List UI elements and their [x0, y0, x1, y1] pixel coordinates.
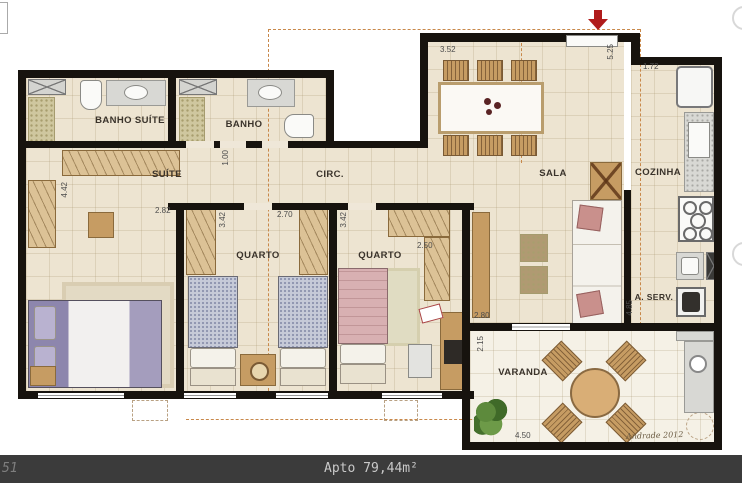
pouf-suite [88, 212, 114, 238]
dining-chair-3 [511, 60, 537, 81]
projection-line-bottom [186, 419, 472, 420]
stove-burner-center [690, 213, 706, 229]
ac-unit-dashed-quarto [384, 400, 418, 421]
room-label-quarto1: QUARTO [228, 251, 288, 262]
wall-sala-left [420, 33, 428, 148]
dim-quarto2-width: 2.50 [417, 241, 433, 250]
door-quarto2 [348, 203, 376, 210]
dim-varanda-width: 4.50 [515, 431, 531, 440]
wall-right [714, 57, 722, 450]
wall-varanda-left [462, 331, 470, 450]
dining-chair-1 [443, 60, 469, 81]
shaft-vent-banho [179, 79, 217, 95]
dining-chair-2 [477, 60, 503, 81]
room-label-cozinha: COZINHA [630, 168, 686, 179]
dim-circ-height: 1.00 [221, 150, 230, 166]
bed-suite-pillow [34, 306, 56, 340]
sofa-pillow-1 [576, 204, 603, 231]
entrance-arrow-head-icon [588, 19, 608, 30]
wall-bathrooms-top [18, 70, 334, 78]
wall-bath-right [326, 70, 334, 148]
dim-quarto1-height: 3.42 [218, 212, 227, 228]
bed-quarto2-pillow [340, 344, 386, 364]
bed2-quarto1-base [280, 368, 326, 386]
door-banho-suite [220, 141, 246, 148]
dim-suite-width: 2.82 [155, 206, 171, 215]
window-quarto2 [382, 393, 442, 398]
window-quarto1-right [276, 393, 328, 398]
dining-plate-1 [484, 98, 491, 105]
pouf-sala-1 [520, 234, 548, 262]
tanque-basin [681, 257, 699, 275]
wall-left [18, 70, 26, 399]
dim-dining-width: 3.52 [440, 45, 456, 54]
stove-burner-3 [683, 227, 697, 241]
basin-banho-suite [124, 85, 148, 100]
bed-quarto2-base [340, 364, 386, 384]
toilet-banho-suite [80, 80, 102, 110]
monitor-quarto2 [444, 340, 462, 364]
room-label-varanda: VARANDA [488, 368, 558, 379]
room-label-aserv: A. SERV. [630, 293, 678, 303]
entrance-arrow-icon [594, 10, 602, 19]
basin-banho [258, 85, 282, 100]
carousel-dot-top[interactable] [732, 6, 742, 30]
churrasqueira-step [676, 331, 714, 341]
closet-quarto1-left [186, 209, 216, 275]
dining-chair-4 [443, 135, 469, 156]
room-label-sala: SALA [528, 169, 578, 180]
bed1-quarto1-base [190, 368, 236, 386]
bed2-quarto1-pillow [280, 348, 326, 368]
wall-sala-varanda [462, 323, 722, 331]
carousel-dot-middle[interactable] [732, 242, 742, 266]
dining-chair-5 [477, 135, 503, 156]
bed2-quarto1-mattress [278, 276, 328, 348]
pouf-sala-2 [520, 266, 548, 294]
wall-bath-divider [168, 70, 176, 148]
dim-kitchen-width: 1.72 [643, 62, 659, 71]
dining-plate-2 [494, 102, 501, 109]
shelf-quarto2 [408, 344, 432, 378]
washer-door [682, 292, 700, 312]
door-quarto1 [244, 203, 272, 210]
future-item-dashed-circle [686, 412, 714, 440]
thumbnail-box[interactable] [0, 2, 8, 34]
churrasqueira-counter [684, 341, 714, 413]
dim-varanda-height: 2.15 [476, 336, 485, 352]
projection-line-right [640, 29, 641, 330]
shaft-vent-banho-suite [28, 79, 66, 95]
wall-varanda-bottom [462, 442, 722, 450]
stove-burner-4 [699, 227, 713, 241]
footer-bar: 51 Apto 79,44m² [0, 455, 742, 483]
fridge-cozinha [676, 66, 713, 108]
sofa-pillow-2 [576, 290, 604, 318]
varanda-table [570, 368, 620, 418]
room-label-banho: BANHO [220, 120, 268, 131]
bed-quarto2-mattress [338, 268, 388, 344]
dining-plate-3 [486, 109, 492, 115]
dining-chair-6 [511, 135, 537, 156]
apartment-area-caption: Apto 79,44m² [0, 461, 742, 476]
dim-suite-height: 4.42 [60, 182, 69, 198]
closet-quarto1-right [299, 209, 328, 275]
ac-unit-dashed-suite [132, 400, 168, 421]
room-label-suite: SUÍTE [142, 170, 192, 181]
door-suite [186, 141, 214, 148]
closet-quarto2-top [388, 209, 450, 237]
projection-line-top [268, 29, 640, 30]
plant-varanda [474, 396, 508, 436]
window-suite [38, 393, 124, 398]
dim-quarto2-height: 3.42 [339, 212, 348, 228]
guitar-stand-suite [30, 366, 56, 386]
shower-banho [179, 97, 205, 145]
dining-table [438, 82, 544, 134]
wall-circ-bottom [168, 203, 474, 210]
bed1-quarto1-mattress [188, 276, 238, 348]
wall-quarto2-sala [462, 203, 470, 331]
window-quarto1-left [184, 393, 236, 398]
clock-quarto1 [250, 362, 269, 381]
closet-suite-left [28, 180, 56, 248]
room-label-quarto2: QUARTO [350, 251, 410, 262]
sideboard-sala [472, 212, 490, 318]
dim-cozinha-height: 4.85 [625, 300, 634, 316]
room-label-circ: CIRC. [300, 170, 360, 181]
toilet-banho [284, 114, 314, 138]
door-banho [262, 141, 288, 148]
dim-sala-width: 2.80 [474, 311, 490, 320]
wall-quarto1-quarto2 [329, 203, 337, 399]
sink-cozinha [688, 122, 710, 158]
wall-suite-quarto1 [176, 203, 184, 399]
churrasqueira-sink [689, 355, 707, 373]
bed1-quarto1-pillow [190, 348, 236, 368]
floor-plan-page: BANHO SUÍTE BANHO SUÍTE 4.42 2.82 CIRC. … [0, 0, 742, 483]
window-varanda-door [512, 324, 570, 330]
shower-banho-suite [28, 97, 55, 145]
room-label-banho-suite: BANHO SUÍTE [92, 116, 168, 127]
dim-quarto1-width: 2.70 [277, 210, 293, 219]
tv-cabinet-sala [590, 162, 622, 200]
dim-entry-height: 5.25 [606, 44, 615, 60]
